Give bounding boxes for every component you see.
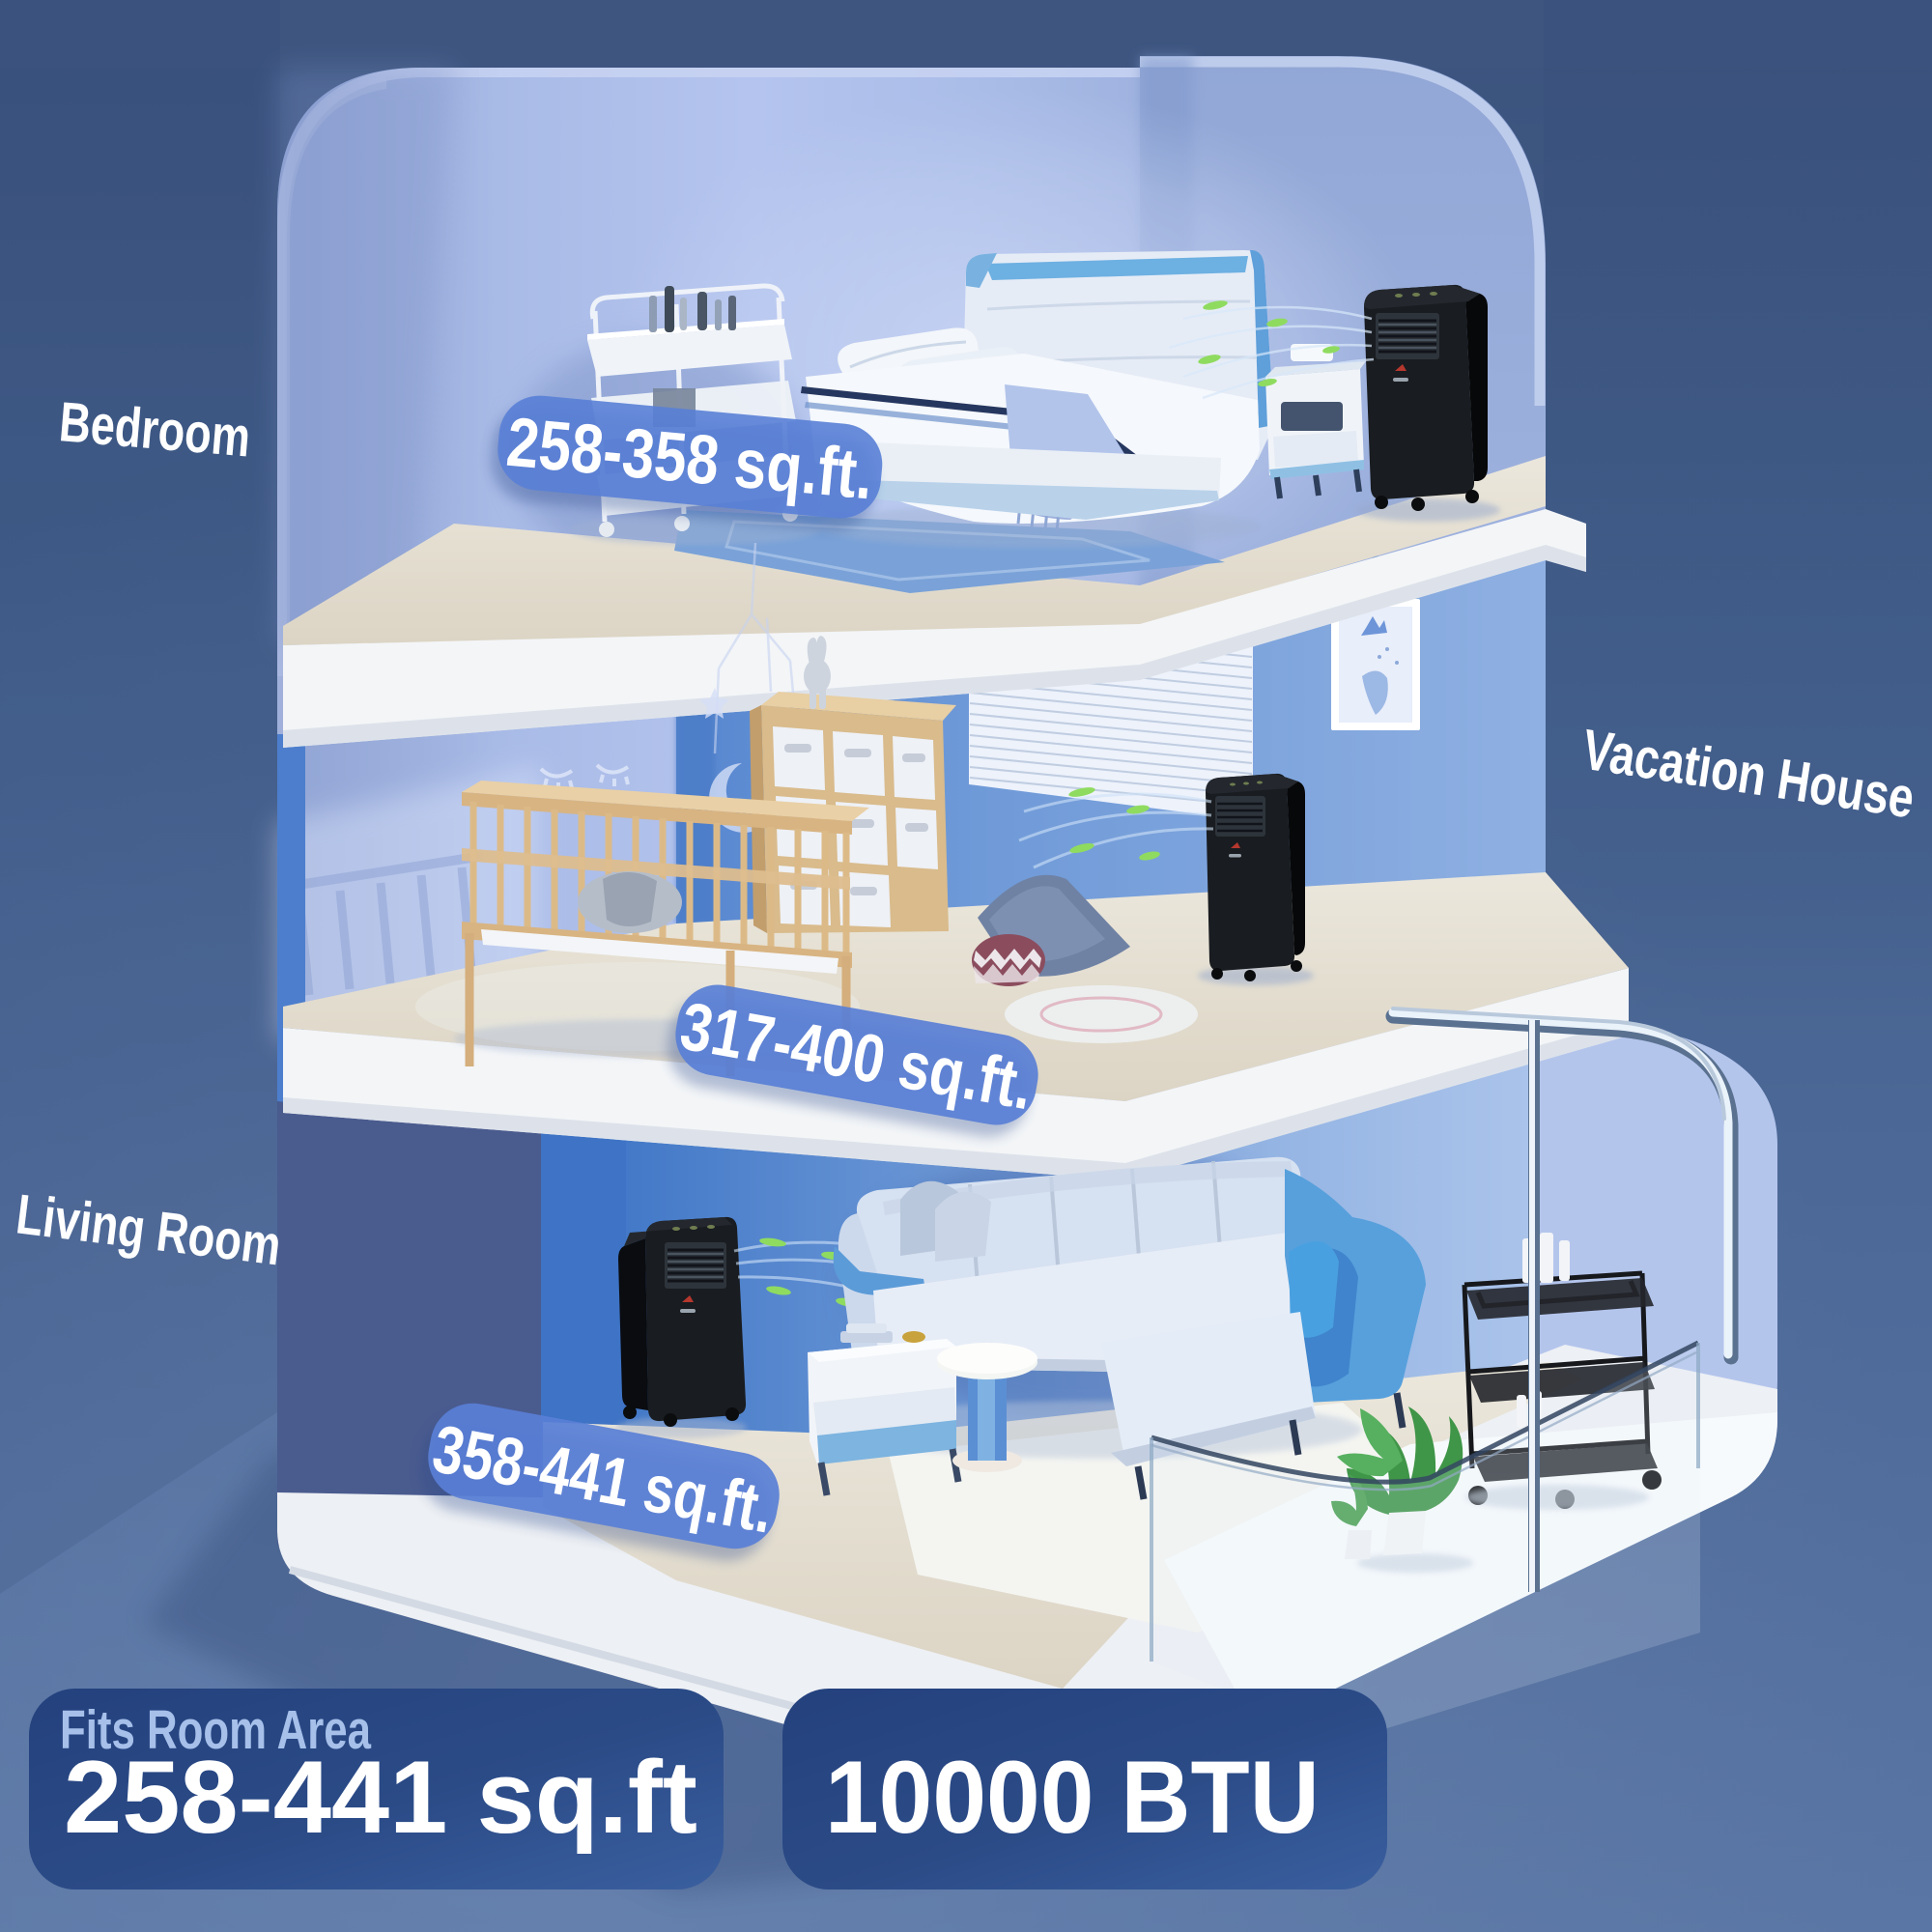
svg-text:258-441 sq.ft: 258-441 sq.ft (64, 1739, 697, 1855)
svg-text:10000 BTU: 10000 BTU (825, 1739, 1320, 1855)
